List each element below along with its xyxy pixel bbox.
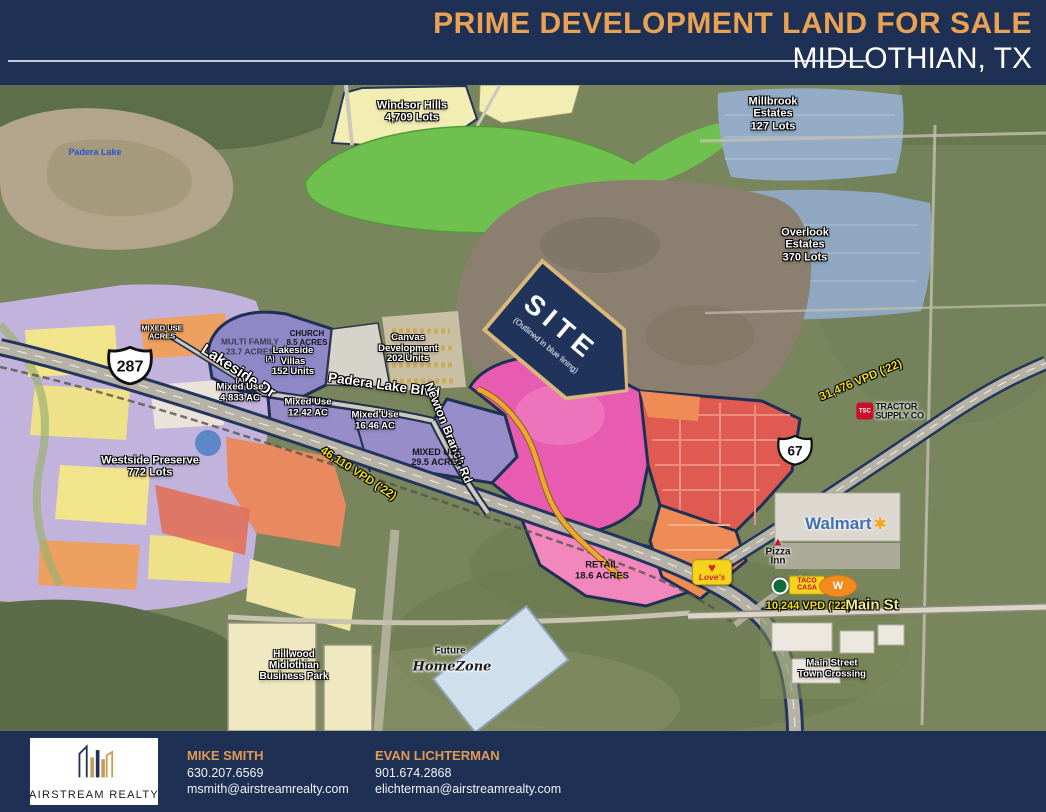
contact-phone: 630.207.6569	[187, 765, 349, 781]
zone-millbrook-estates	[718, 88, 904, 180]
company-name: AIRSTREAM REALTY	[29, 789, 159, 801]
contact-evan-lichterman: EVAN LICHTERMAN 901.674.2868 elichterman…	[375, 748, 561, 797]
loves-logo: ♥ Love's	[692, 559, 732, 585]
zone-multifamily	[208, 312, 332, 398]
contact-phone: 901.674.2868	[375, 765, 561, 781]
zone-church	[326, 323, 390, 387]
header-divider	[8, 60, 866, 62]
homezone-wordmark: HomeZone	[413, 660, 492, 675]
loves-wordmark: Love's	[699, 573, 726, 582]
page-subtitle: MIDLOTHIAN, TX	[793, 42, 1032, 76]
homezone-logo: HomeZone	[0, 660, 975, 675]
us287-shield-number: 287	[117, 357, 144, 375]
flyer-page: PRIME DEVELOPMENT LAND FOR SALE MIDLOTHI…	[0, 0, 1046, 812]
page-title: PRIME DEVELOPMENT LAND FOR SALE	[433, 7, 1032, 41]
whataburger-w: W	[833, 580, 843, 592]
taco-casa-wordmark: TACO CASA	[797, 578, 817, 593]
airstream-realty-logo: AIRSTREAM REALTY	[30, 738, 158, 805]
pond	[195, 430, 221, 456]
contact-name: EVAN LICHTERMAN	[375, 748, 561, 763]
walmart-logo: Walmart ✱	[805, 514, 887, 534]
walmart-wordmark: Walmart	[805, 514, 871, 534]
pizza-inn-logo: ▲ Pizza Inn	[765, 538, 790, 567]
contact-mike-smith: MIKE SMITH 630.207.6569 msmith@airstream…	[187, 748, 349, 797]
walmart-spark-icon: ✱	[874, 514, 887, 534]
contact-email: msmith@airstreamrealty.com	[187, 781, 349, 797]
tsc-box-icon: TSC	[856, 403, 873, 420]
town-crossing-buildings	[760, 617, 920, 699]
pizza-inn-wordmark: Pizza Inn	[765, 547, 790, 566]
tractor-supply-logo: TSC TRACTOR SUPPLY CO	[856, 402, 923, 419]
header: PRIME DEVELOPMENT LAND FOR SALE MIDLOTHI…	[0, 0, 1046, 85]
zone-canvas-development	[382, 311, 466, 391]
starbucks-logo	[772, 578, 789, 595]
footer: AIRSTREAM REALTY MIKE SMITH 630.207.6569…	[0, 731, 1046, 812]
whataburger-logo: W	[819, 575, 857, 597]
skyline-icon	[62, 741, 126, 781]
aerial-map: Padera Lake Windsor Hills 4,709 Lots Mil…	[0, 85, 1046, 731]
tractor-supply-wordmark: TRACTOR SUPPLY CO	[875, 402, 923, 419]
contact-name: MIKE SMITH	[187, 748, 349, 763]
contact-email: elichterman@airstreamrealty.com	[375, 781, 561, 797]
us67-shield-number: 67	[788, 444, 803, 459]
